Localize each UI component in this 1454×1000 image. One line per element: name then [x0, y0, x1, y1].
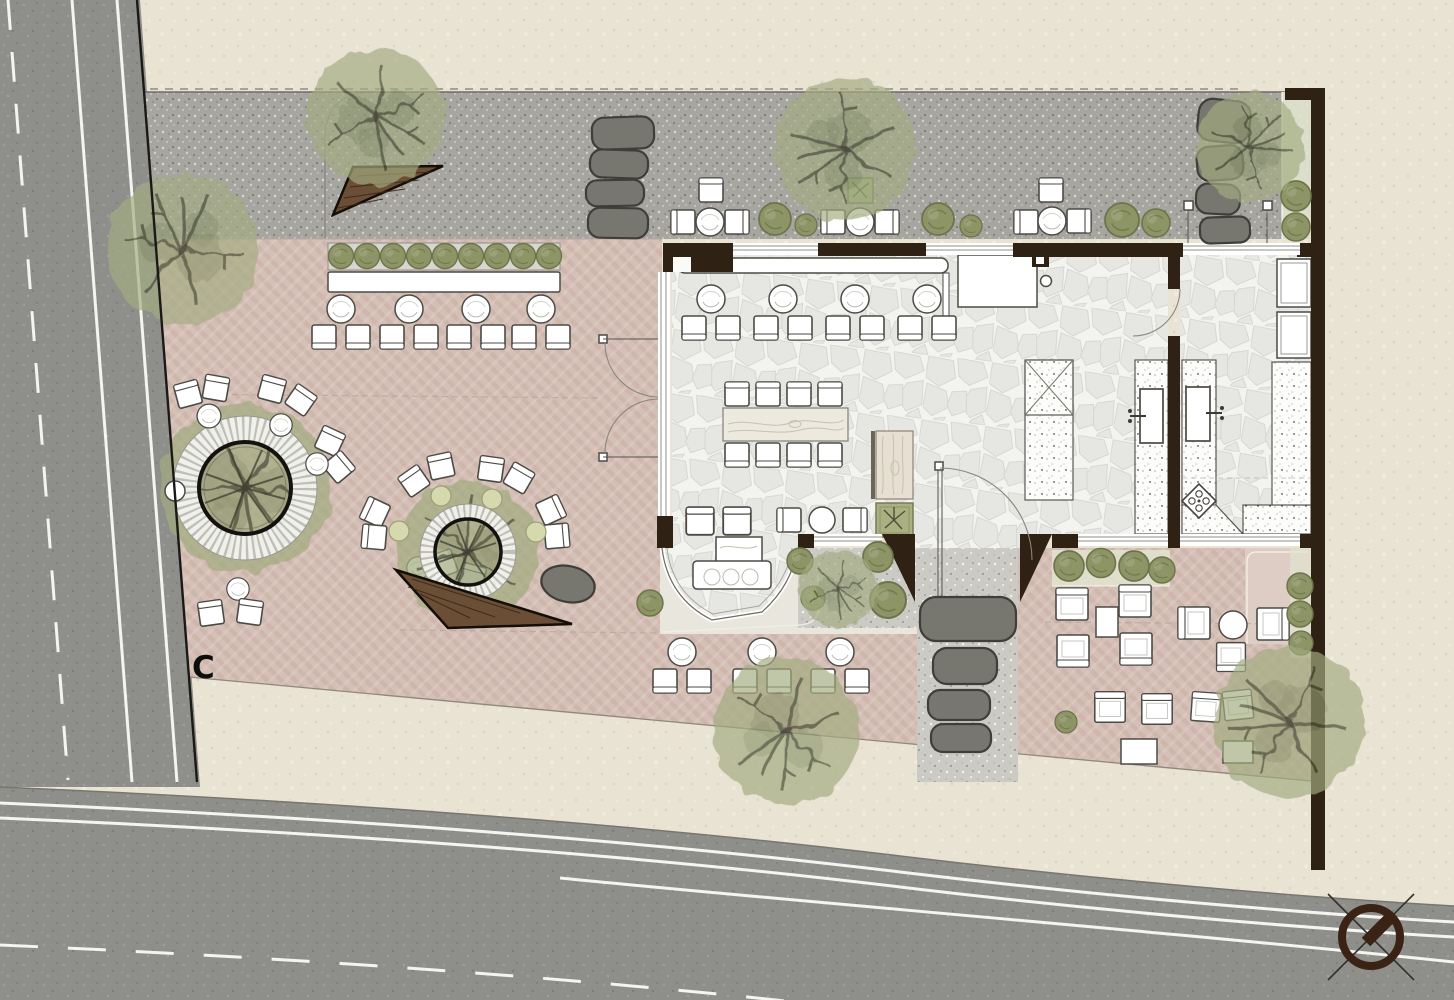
service-counter: [958, 255, 1037, 307]
side-table: [1096, 607, 1118, 637]
indoor-planter: [876, 503, 913, 537]
garden-table: [482, 489, 502, 509]
garden-table: [389, 521, 409, 541]
site-plan-canvas: C: [0, 0, 1454, 1000]
counter: [1135, 360, 1168, 534]
outdoor-counter: [328, 272, 560, 292]
slider-track: [1263, 201, 1272, 210]
slider-track: [1184, 201, 1193, 210]
round-table: [1219, 611, 1247, 639]
kitchen-island: [1025, 360, 1073, 500]
fridge: [1277, 312, 1311, 358]
side-table: [1121, 739, 1157, 764]
architectural-site-plan: C: [0, 0, 1454, 1000]
wood-bench: [871, 431, 913, 499]
side-table: [809, 507, 835, 533]
section-marker: C: [192, 650, 215, 686]
fridge: [1277, 259, 1311, 307]
ring-bench: [173, 416, 317, 560]
counter-return: [943, 273, 949, 321]
partition-wall: [1168, 336, 1180, 534]
garden-table: [431, 486, 451, 506]
stool: [1041, 276, 1052, 287]
north-arrow-icon: [1328, 894, 1414, 980]
counter: [1272, 362, 1311, 505]
garden-table: [526, 522, 546, 542]
partition-wall: [1168, 253, 1180, 289]
